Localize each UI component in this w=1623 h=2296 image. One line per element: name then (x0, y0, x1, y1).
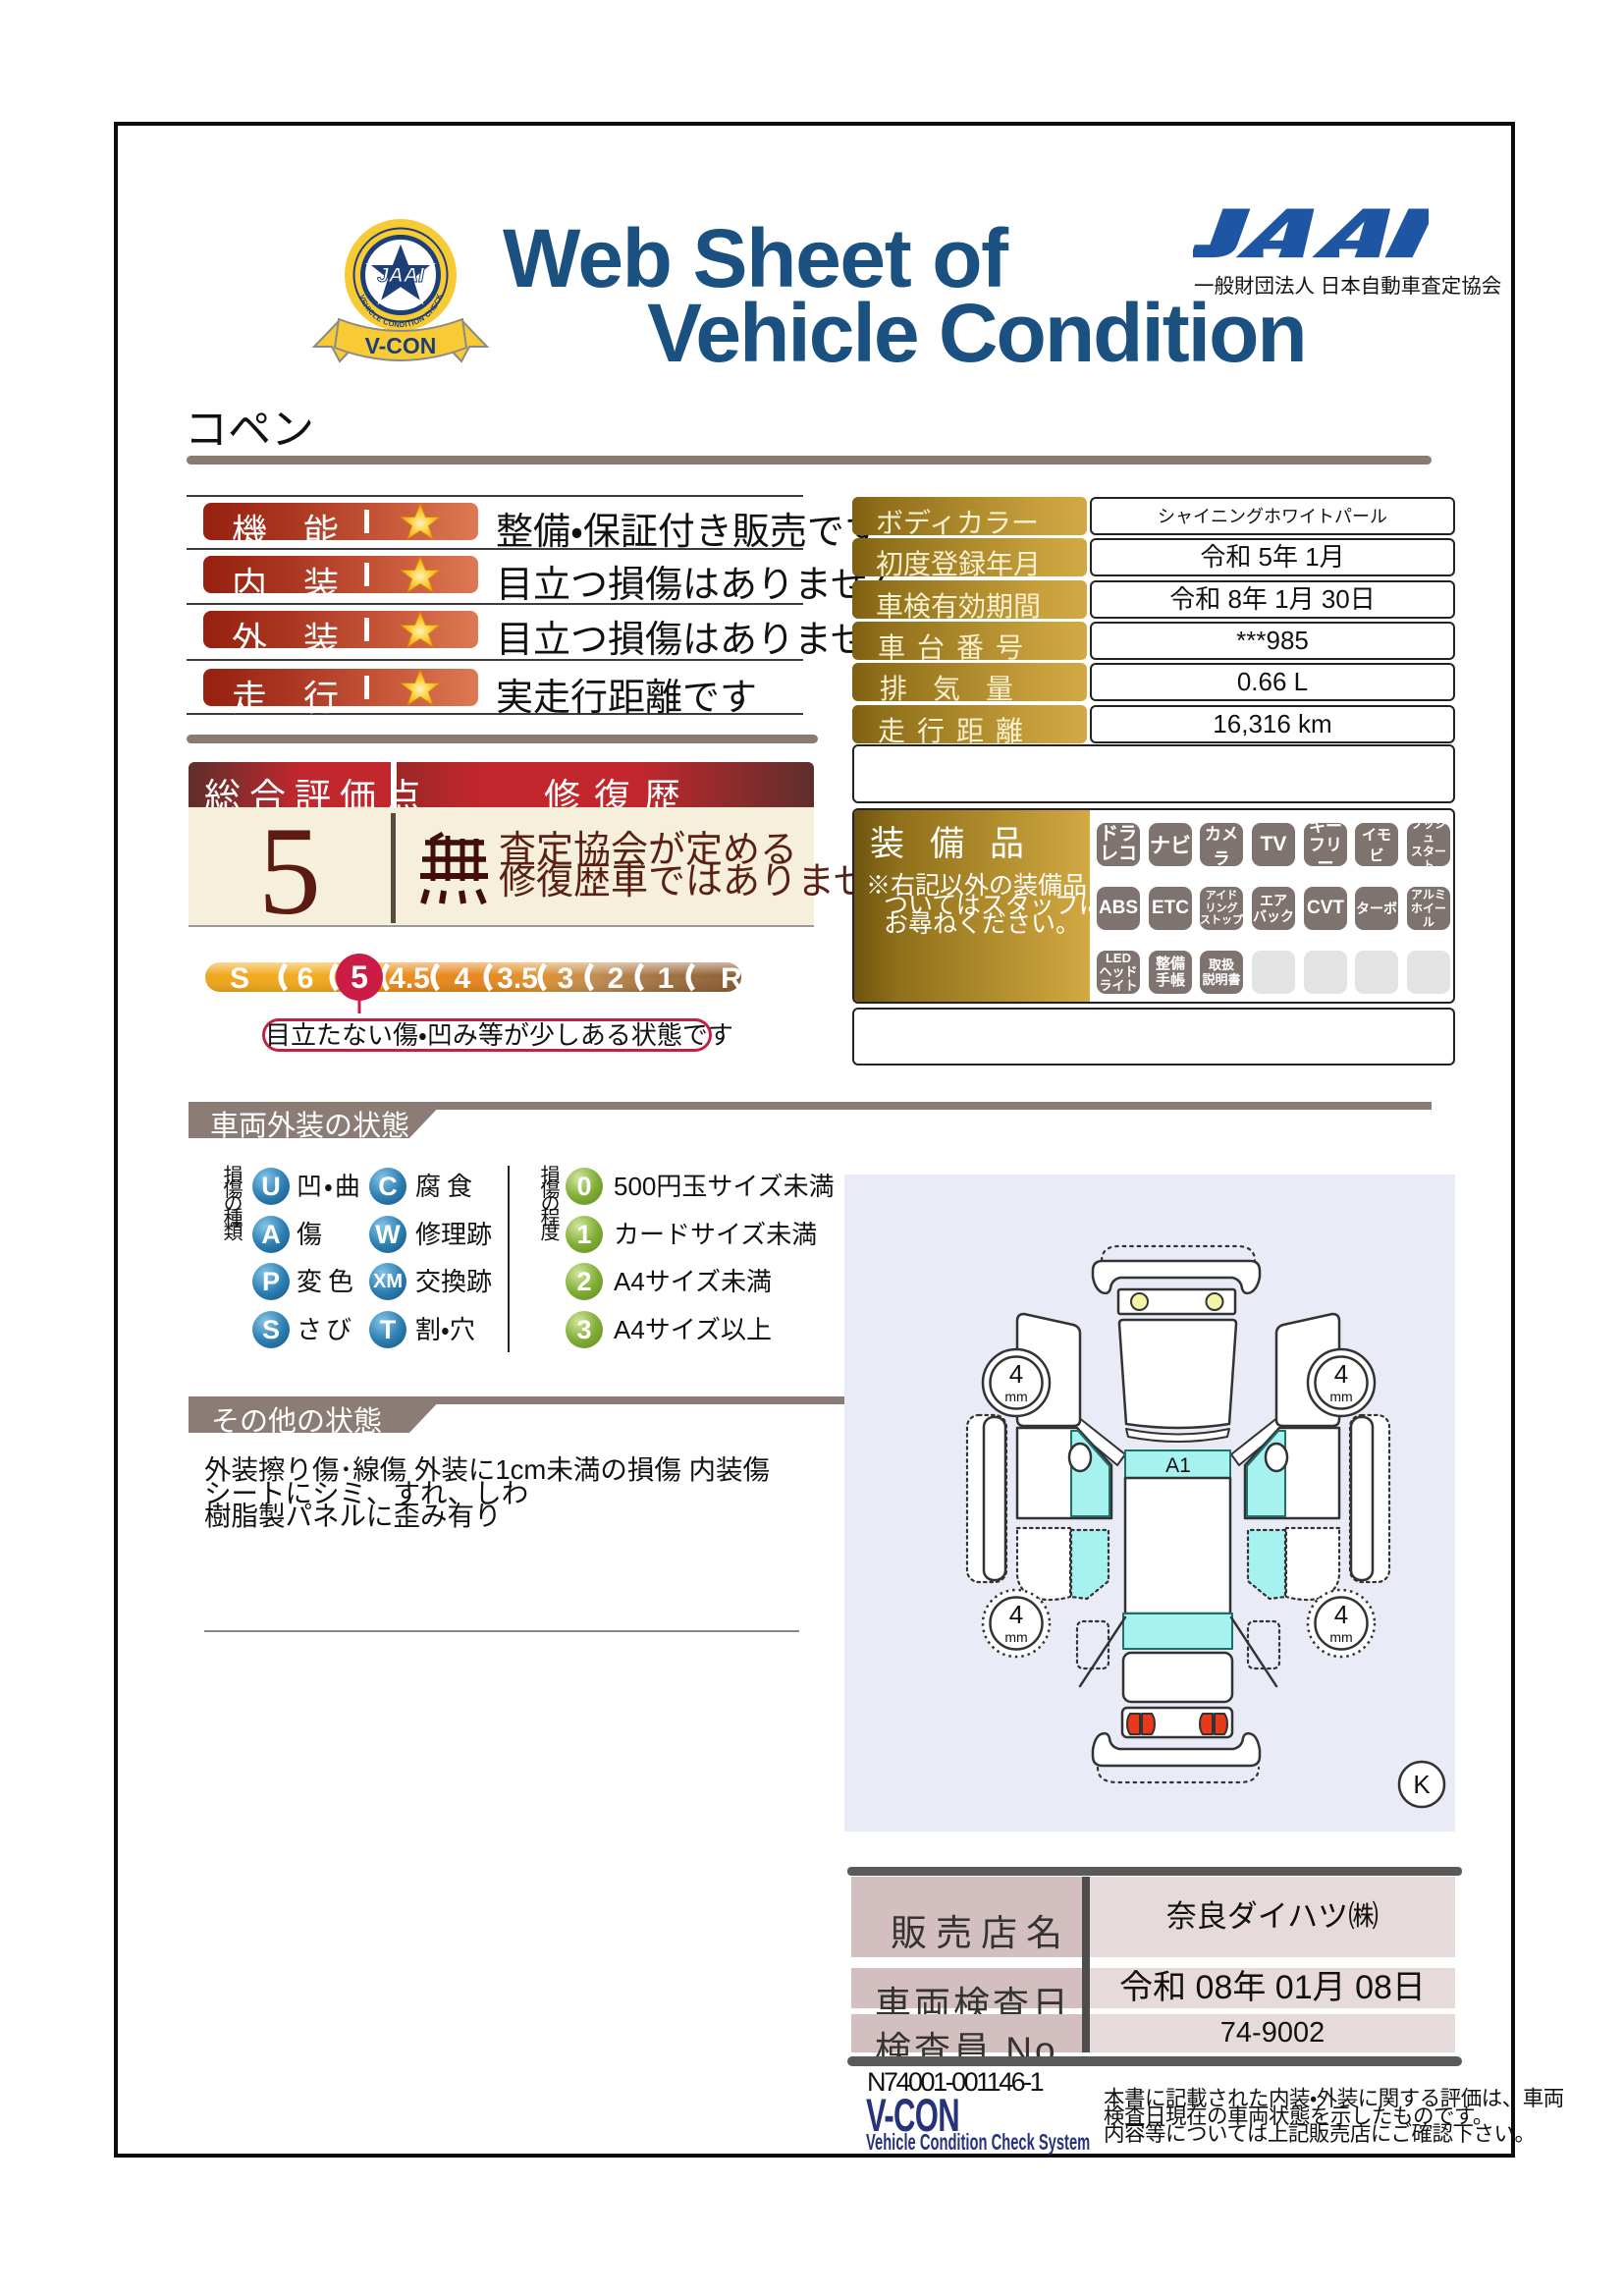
svg-text:5: 5 (351, 959, 368, 995)
svg-text:3.5: 3.5 (497, 962, 538, 995)
svg-text:4: 4 (1334, 1359, 1348, 1389)
svg-text:2: 2 (608, 962, 624, 995)
svg-text:1: 1 (658, 962, 675, 995)
svg-text:4: 4 (1334, 1600, 1348, 1629)
svg-text:mm: mm (1004, 1389, 1027, 1404)
svg-text:V-CON: V-CON (365, 333, 437, 358)
svg-text:4: 4 (1009, 1359, 1023, 1389)
svg-text:K: K (1413, 1770, 1431, 1799)
svg-text:A1: A1 (1165, 1454, 1191, 1477)
svg-text:R: R (721, 962, 742, 995)
svg-text:JAAI: JAAI (377, 264, 425, 287)
svg-text:mm: mm (1329, 1629, 1352, 1645)
svg-text:S: S (230, 962, 249, 995)
svg-text:4.5: 4.5 (389, 962, 430, 995)
svg-text:4: 4 (455, 962, 471, 995)
svg-text:6: 6 (298, 962, 314, 995)
svg-text:mm: mm (1329, 1389, 1352, 1404)
svg-text:mm: mm (1004, 1629, 1027, 1645)
svg-text:4: 4 (1009, 1600, 1023, 1629)
svg-text:3: 3 (558, 962, 574, 995)
